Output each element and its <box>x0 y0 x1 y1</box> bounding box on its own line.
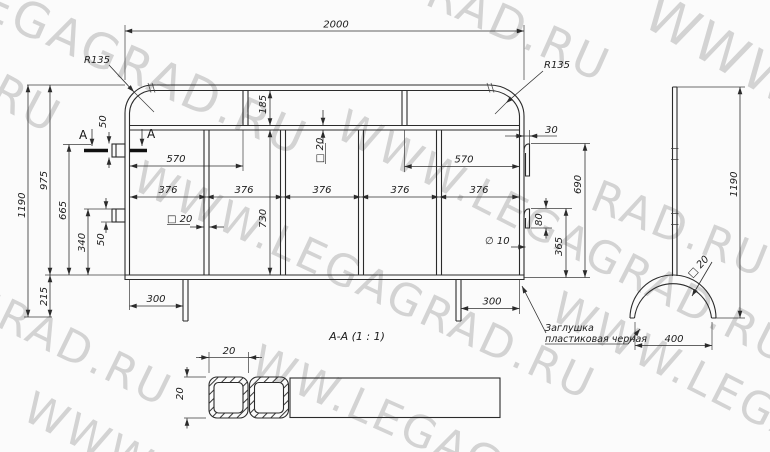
dim-overall-width: 2000 <box>323 20 348 31</box>
dim-foot-offset-left: 300 <box>146 294 165 305</box>
section-tube-1 <box>209 377 248 418</box>
dim-frame-height: 975 <box>39 171 50 190</box>
section-tube-2 <box>250 377 289 418</box>
dim-lug-lower-size: 50 <box>96 233 107 246</box>
left-leg <box>183 280 188 322</box>
dim-tube-post: □ 20 <box>167 214 192 225</box>
dim-top-band: 185 <box>258 95 269 114</box>
dim-spacing-5: 376 <box>469 185 488 196</box>
dim-hook-rod-dia: ∅ 10 <box>485 236 510 247</box>
technical-drawing-page: LEGAGRAD.RU GRAD.RU WWW.L .RU WWW.LEGAGR… <box>0 0 770 452</box>
dim-radius-left: R135 <box>84 55 110 66</box>
section-label-right: A <box>147 127 156 141</box>
dim-leg-drop: 215 <box>39 287 50 306</box>
dim-mid-band: 730 <box>258 209 269 228</box>
dim-spacing-4: 376 <box>390 185 409 196</box>
dim-panel-left: 570 <box>166 154 185 165</box>
dim-foot-width: 400 <box>664 334 683 345</box>
dim-hook-upper-height: 690 <box>573 175 584 194</box>
dim-panel-right: 570 <box>454 155 473 166</box>
latch-lug-upper <box>112 144 125 157</box>
dim-lug-upper-size: 50 <box>98 115 109 128</box>
watermark-text: .RU <box>0 55 71 145</box>
watermark-text: AGRAD.RU <box>0 259 180 417</box>
second-rail <box>130 126 520 131</box>
watermark-text: WWW.LEGAGRAD.RU <box>125 152 603 411</box>
dim-lug-upper-height: 665 <box>58 201 69 220</box>
dim-foot-offset-right: 300 <box>482 297 501 308</box>
dim-total-height: 1190 <box>17 193 28 218</box>
dim-section-width: 20 <box>223 346 236 357</box>
dim-lug-lower-height: 340 <box>77 233 88 252</box>
dim-section-height: 20 <box>175 387 186 400</box>
dim-spacing-1: 376 <box>158 185 177 196</box>
dim-tube-rail: □ 20 <box>315 138 326 163</box>
latch-lug-lower <box>112 209 125 222</box>
dim-hook-length: 80 <box>534 213 545 226</box>
dim-side-height: 1190 <box>729 172 740 197</box>
dim-spacing-3: 376 <box>312 185 331 196</box>
section-title: A-A (1 : 1) <box>328 330 385 343</box>
section-label-left: A <box>79 128 88 142</box>
hook-upper <box>524 144 530 176</box>
dim-radius-right: R135 <box>544 60 570 71</box>
watermark-text: WWW.L <box>634 0 770 143</box>
dim-hook-lower-height: 365 <box>554 237 565 256</box>
watermark-text: GRAD.RU <box>384 0 620 93</box>
dim-spacing-2: 376 <box>234 185 253 196</box>
note-line-1: Заглушка <box>545 323 594 334</box>
barrier-drawing: LEGAGRAD.RU GRAD.RU WWW.L .RU WWW.LEGAGR… <box>0 0 770 452</box>
watermark-layer: LEGAGRAD.RU GRAD.RU WWW.L .RU WWW.LEGAGR… <box>0 0 770 452</box>
dim-hook-offset: 30 <box>545 125 558 136</box>
